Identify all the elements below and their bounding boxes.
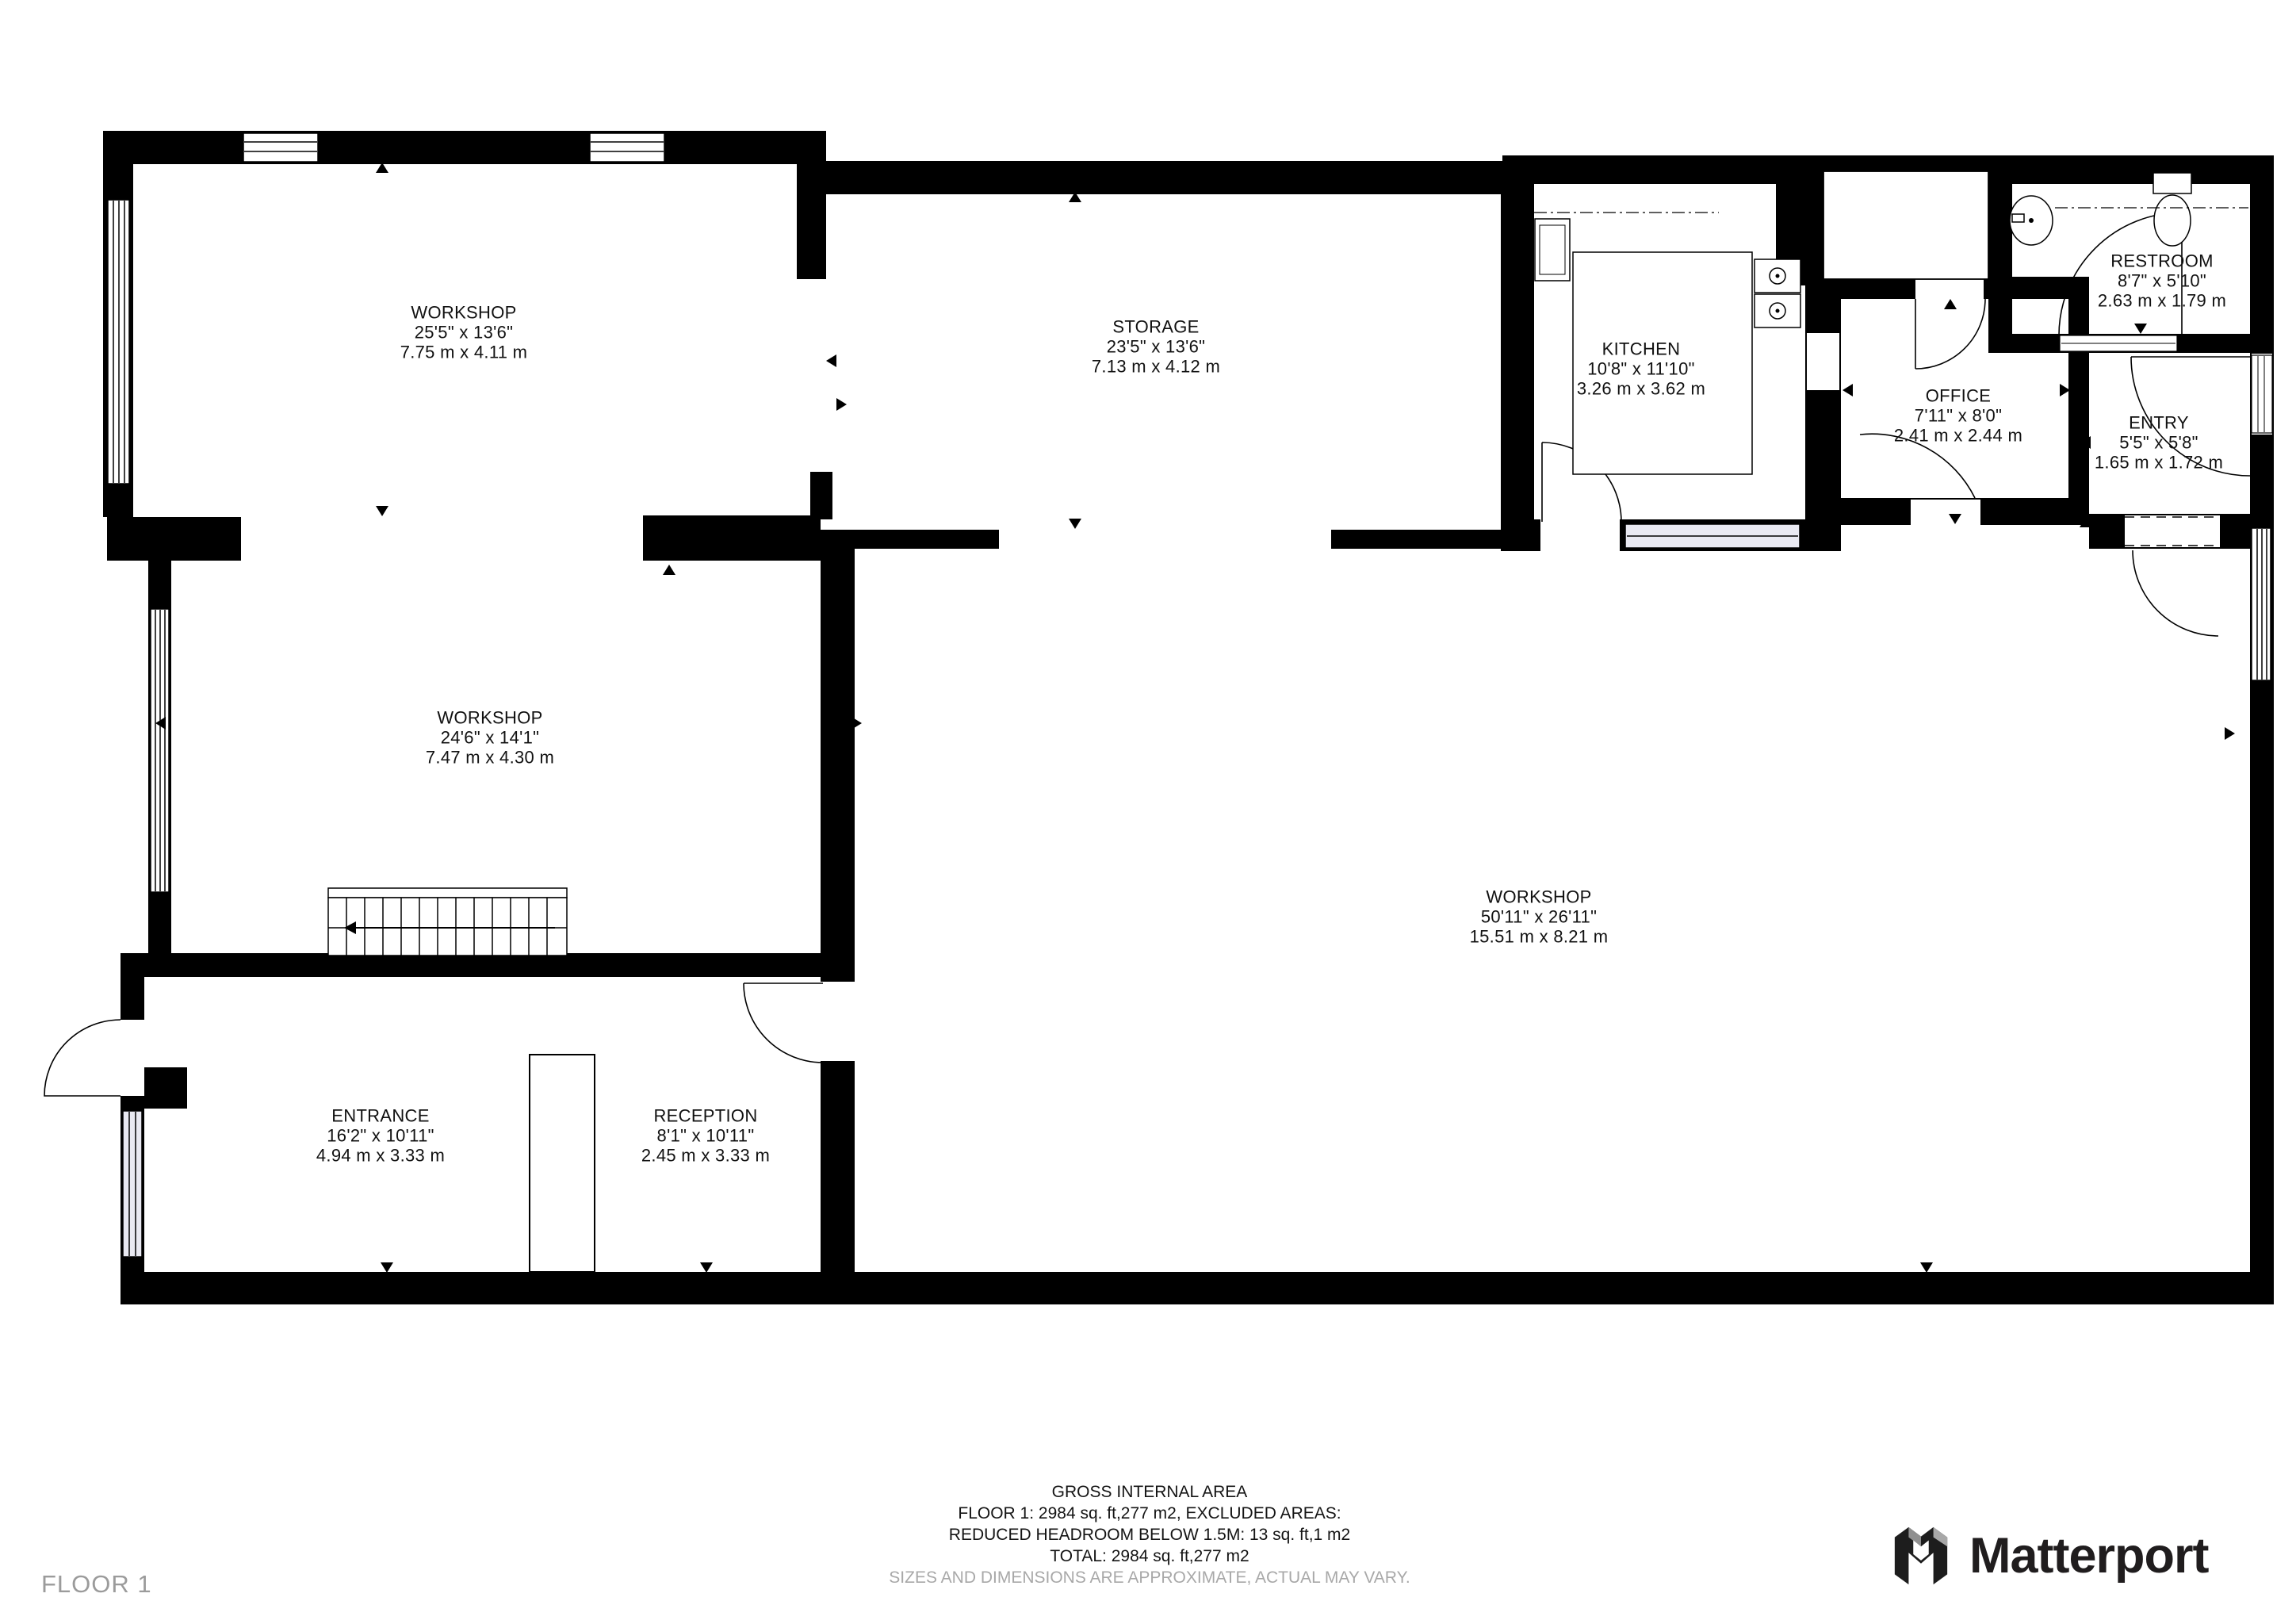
door-reception	[744, 983, 823, 1063]
gross-internal-area-summary: GROSS INTERNAL AREA FLOOR 1: 2984 sq. ft…	[889, 1481, 1410, 1588]
room-dim-imperial: 8'7" x 5'10"	[2098, 271, 2226, 291]
door-office-top	[1915, 299, 1985, 369]
room-dim-imperial: 50'11" x 26'11"	[1470, 907, 1609, 927]
matterport-logo-icon	[1890, 1524, 1952, 1588]
room-name: WORKSHOP	[400, 303, 528, 323]
room-label-workshop-1: WORKSHOP 25'5" x 13'6" 7.75 m x 4.11 m	[400, 303, 528, 362]
threshold-entry-door	[2252, 355, 2272, 433]
kitchen-appliance	[1535, 219, 1570, 281]
room-divider	[530, 1055, 595, 1272]
matterport-branding: Matterport	[1890, 1524, 2209, 1588]
room-dim-metric: 7.13 m x 4.12 m	[1092, 357, 1220, 377]
window-entrance-left	[123, 1111, 142, 1257]
room-dim-metric: 2.45 m x 3.33 m	[641, 1146, 770, 1166]
threshold-restroom-door	[2060, 335, 2177, 351]
footer-total-area: TOTAL: 2984 sq. ft,277 m2	[889, 1545, 1410, 1567]
room-name: STORAGE	[1092, 317, 1220, 337]
room-dim-metric: 1.65 m x 1.72 m	[2095, 453, 2223, 473]
room-dim-imperial: 7'11" x 8'0"	[1894, 406, 2022, 426]
room-dim-imperial: 5'5" x 5'8"	[2095, 433, 2223, 453]
window-top-left	[243, 133, 318, 162]
brand-name: Matterport	[1969, 1527, 2209, 1584]
marker-right-icons	[836, 384, 2235, 740]
room-dim-imperial: 25'5" x 13'6"	[400, 323, 528, 343]
room-dim-metric: 15.51 m x 8.21 m	[1470, 927, 1609, 947]
footer-disclaimer: SIZES AND DIMENSIONS ARE APPROXIMATE, AC…	[889, 1567, 1410, 1588]
toilet-icon	[2153, 173, 2191, 246]
room-dim-metric: 3.26 m x 3.62 m	[1577, 379, 1705, 399]
footer-excluded-area: REDUCED HEADROOM BELOW 1.5M: 13 sq. ft,1…	[889, 1524, 1410, 1545]
room-name: ENTRANCE	[316, 1106, 445, 1126]
room-label-office: OFFICE 7'11" x 8'0" 2.41 m x 2.44 m	[1894, 386, 2022, 446]
floor-label: FLOOR 1	[41, 1570, 152, 1599]
window-workshop3-right	[2252, 528, 2271, 680]
room-label-restroom: RESTROOM 8'7" x 5'10" 2.63 m x 1.79 m	[2098, 251, 2226, 311]
room-dim-metric: 2.41 m x 2.44 m	[1894, 426, 2022, 446]
room-name: RECEPTION	[641, 1106, 770, 1126]
room-label-kitchen: KITCHEN 10'8" x 11'10" 3.26 m x 3.62 m	[1577, 339, 1705, 399]
window-workshop1-left	[108, 200, 129, 484]
room-name: WORKSHOP	[426, 708, 554, 728]
room-label-workshop-2: WORKSHOP 24'6" x 14'1" 7.47 m x 4.30 m	[426, 708, 554, 768]
footer-title: GROSS INTERNAL AREA	[889, 1481, 1410, 1503]
room-dim-imperial: 10'8" x 11'10"	[1577, 359, 1705, 379]
room-name: KITCHEN	[1577, 339, 1705, 359]
room-dim-imperial: 8'1" x 10'11"	[641, 1126, 770, 1146]
footer-floor-area: FLOOR 1: 2984 sq. ft,277 m2, EXCLUDED AR…	[889, 1503, 1410, 1524]
room-dim-imperial: 23'5" x 13'6"	[1092, 337, 1220, 357]
door-entrance-exterior	[44, 1020, 121, 1096]
room-label-entry: ENTRY 5'5" x 5'8" 1.65 m x 1.72 m	[2095, 413, 2223, 473]
stove-icon	[1755, 259, 1800, 327]
floorplan-drawing	[0, 0, 2296, 1624]
window-workshop2-left	[151, 609, 169, 892]
room-name: WORKSHOP	[1470, 887, 1609, 907]
room-name: RESTROOM	[2098, 251, 2226, 271]
room-name: ENTRY	[2095, 413, 2223, 433]
door-entry-inner	[2133, 550, 2218, 636]
room-label-entrance: ENTRANCE 16'2" x 10'11" 4.94 m x 3.33 m	[316, 1106, 445, 1166]
stairs	[328, 888, 567, 956]
room-dim-metric: 4.94 m x 3.33 m	[316, 1146, 445, 1166]
room-dim-imperial: 24'6" x 14'1"	[426, 728, 554, 748]
room-dim-metric: 7.75 m x 4.11 m	[400, 343, 528, 362]
room-dim-metric: 7.47 m x 4.30 m	[426, 748, 554, 768]
window-top-right	[590, 133, 664, 162]
room-label-storage: STORAGE 23'5" x 13'6" 7.13 m x 4.12 m	[1092, 317, 1220, 377]
room-dim-metric: 2.63 m x 1.79 m	[2098, 291, 2226, 311]
sink-icon	[2010, 196, 2053, 245]
room-dim-imperial: 16'2" x 10'11"	[316, 1126, 445, 1146]
closet	[1823, 171, 1988, 279]
room-label-reception: RECEPTION 8'1" x 10'11" 2.45 m x 3.33 m	[641, 1106, 770, 1166]
window-kitchen-sliding	[1625, 524, 1800, 548]
floorplan-page: WORKSHOP 25'5" x 13'6" 7.75 m x 4.11 m S…	[0, 0, 2296, 1624]
room-label-workshop-3: WORKSHOP 50'11" x 26'11" 15.51 m x 8.21 …	[1470, 887, 1609, 947]
room-name: OFFICE	[1894, 386, 2022, 406]
